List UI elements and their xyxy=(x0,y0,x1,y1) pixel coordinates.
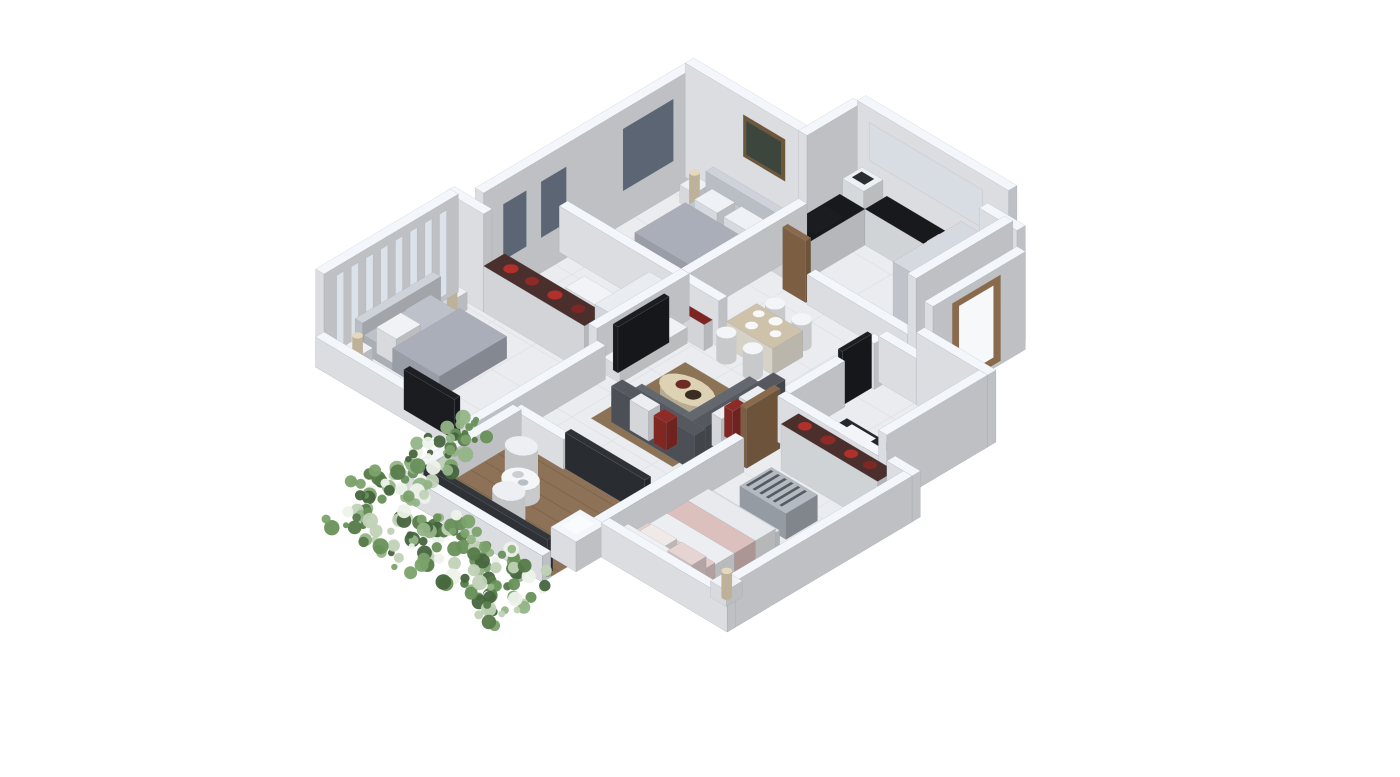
floor-plan-page xyxy=(0,0,1400,777)
wardrobe-clothes-3 xyxy=(547,290,562,299)
b3-clothes-2 xyxy=(820,435,835,444)
door-kitchen xyxy=(783,224,811,303)
dining-chair-3 xyxy=(716,327,736,365)
floor-plan-render xyxy=(0,0,1400,777)
wardrobe-clothes-1 xyxy=(503,264,518,273)
dining-chair-4 xyxy=(743,342,763,380)
b3-lamp xyxy=(721,568,732,600)
sofa-pillow-red-2 xyxy=(654,409,678,451)
coffee-bowl-1 xyxy=(675,380,690,389)
balcony-cup-1 xyxy=(512,471,524,478)
coffee-bowl-2 xyxy=(685,390,702,400)
b3-clothes-4 xyxy=(863,461,877,469)
